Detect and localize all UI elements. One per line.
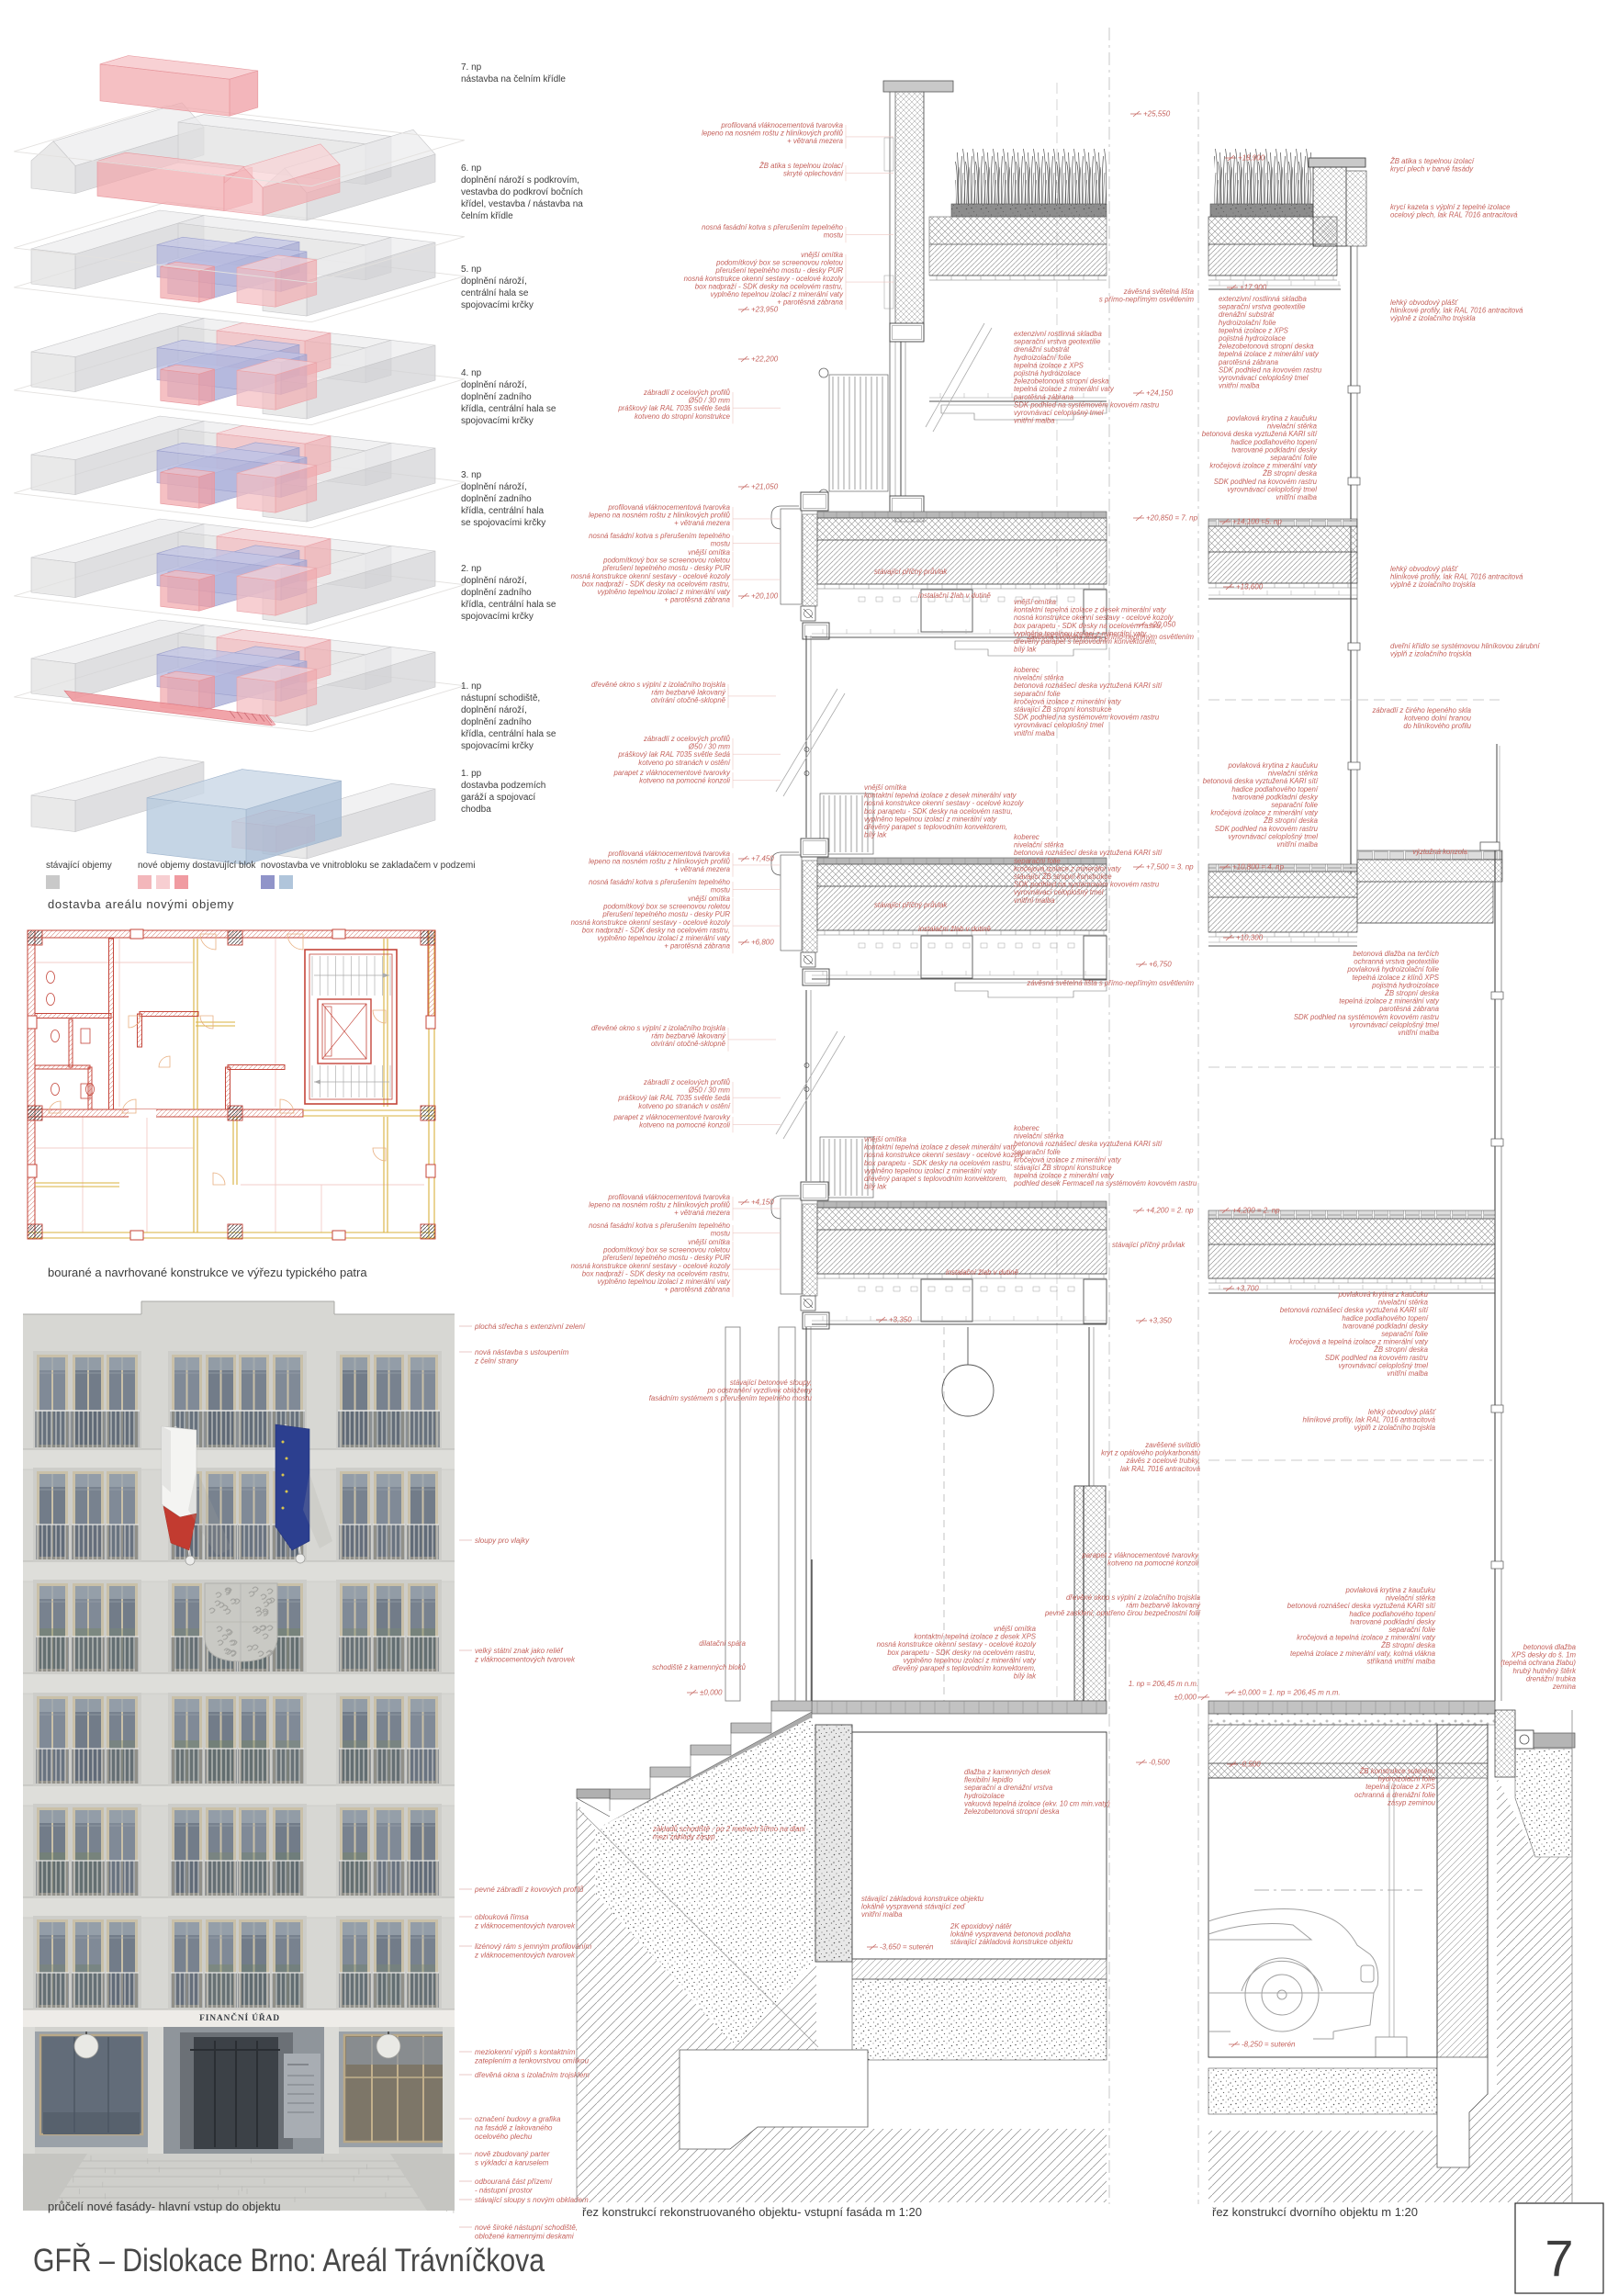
- svg-text:profilovaná vláknocementová tv: profilovaná vláknocementová tvarovkalepe…: [589, 1193, 731, 1217]
- svg-text:+18,900: +18,900: [1238, 154, 1265, 163]
- svg-text:lehký obvodový plášťhliníkové: lehký obvodový plášťhliníkové profily, l…: [1303, 1408, 1437, 1432]
- svg-text:pevné zábradlí z kovových prof: pevné zábradlí z kovových profilů: [474, 1885, 584, 1894]
- svg-text:+6,800: +6,800: [751, 939, 774, 947]
- svg-text:průčelí nové fasády- hlavní vs: průčelí nové fasády- hlavní vstup do obj…: [48, 2200, 281, 2213]
- svg-text:ŽB atika s tepelnou izolacískr: ŽB atika s tepelnou izolacískryté oplech…: [759, 162, 844, 178]
- svg-text:závěsná světelná lišta s přímo: závěsná světelná lišta s přímo-nepřímým …: [1026, 979, 1194, 987]
- svg-text:±0,000: ±0,000: [1174, 1694, 1197, 1702]
- svg-text:lehký obvodový plášťhliníkové: lehký obvodový plášťhliníkové profily, l…: [1390, 565, 1523, 589]
- svg-text:novostavba ve vnitrobloku se z: novostavba ve vnitrobloku se zakladačem …: [261, 861, 475, 871]
- svg-text:závěsná světelná lišta s přímo: závěsná světelná lišta s přímo-nepřímým …: [1026, 633, 1194, 641]
- svg-text:zábradlí z ocelových profilůØ5: zábradlí z ocelových profilůØ50 / 30 mmp…: [617, 1078, 730, 1110]
- svg-text:oblouková římsaz vláknocemento: oblouková římsaz vláknocementových tvaro…: [474, 1913, 576, 1930]
- svg-text:výztužná konzola: výztužná konzola: [1412, 848, 1467, 856]
- svg-text:řez konstrukcí dvorního objekt: řez konstrukcí dvorního objektu m 1:20: [1212, 2205, 1418, 2219]
- svg-text:nově zbudovaný parters výkladc: nově zbudovaný parters výkladci a karuse…: [475, 2150, 550, 2167]
- svg-text:stávající příčný průvlak: stávající příčný průvlak: [874, 901, 948, 909]
- svg-text:+23,950: +23,950: [751, 306, 779, 314]
- svg-text:velký státní znak jako reliéfz: velký státní znak jako reliéfz vláknocem…: [474, 1647, 576, 1663]
- svg-text:stávající sloupy s novým obkla: stávající sloupy s novým obkladem: [475, 2196, 589, 2204]
- svg-text:+6,750: +6,750: [1149, 961, 1172, 969]
- svg-text:instalační žlab v dutině: instalační žlab v dutině: [946, 1268, 1019, 1277]
- svg-text:profilovaná vláknocementová tv: profilovaná vláknocementová tvarovkalepe…: [702, 121, 844, 145]
- svg-text:koberecnivelační stěrkabetonov: koberecnivelační stěrkabetonová roznášec…: [1014, 833, 1163, 905]
- svg-text:nosná fasádní kotva s přerušen: nosná fasádní kotva s přerušením tepelné…: [589, 532, 731, 548]
- svg-text:6. npdoplnění nároží s podkrov: 6. npdoplnění nároží s podkrovím,vestavb…: [461, 163, 583, 221]
- svg-text:+22,200: +22,200: [751, 355, 779, 364]
- svg-text:závěsná světelná lištas přímo-: závěsná světelná lištas přímo-nepřímým o…: [1099, 287, 1195, 304]
- svg-text:7. npnástavba na čelním křídle: 7. npnástavba na čelním křídle: [461, 62, 566, 84]
- svg-text:ŽB atika s tepelnou izolacíkry: ŽB atika s tepelnou izolacíkrycí plech v…: [1389, 157, 1475, 174]
- svg-text:+21,050: +21,050: [751, 483, 779, 491]
- svg-text:lizénový rám s jemným profilov: lizénový rám s jemným profilovánímz vlák…: [474, 1942, 591, 1959]
- svg-text:+13,600: +13,600: [1236, 583, 1264, 591]
- svg-text:-0,500: -0,500: [1240, 1761, 1261, 1769]
- svg-text:+3,700: +3,700: [1236, 1285, 1259, 1293]
- svg-text:1. np = 206,45 m n.m.: 1. np = 206,45 m n.m.: [1129, 1680, 1198, 1688]
- svg-text:vnější omítkapodomítkový box s: vnější omítkapodomítkový box se screenov…: [571, 895, 731, 951]
- svg-text:profilovaná vláknocementová tv: profilovaná vláknocementová tvarovkalepe…: [589, 850, 731, 873]
- svg-text:betonová dlažba na terčíchochr: betonová dlažba na terčíchochranná vrstv…: [1294, 950, 1440, 1037]
- svg-text:povlaková krytina z kaučukuniv: povlaková krytina z kaučukunivelační stě…: [1202, 414, 1318, 501]
- svg-text:schodiště z kamenných bloků: schodiště z kamenných bloků: [652, 1663, 747, 1671]
- svg-text:označení budovy a grafikana fa: označení budovy a grafikana fasádě z lak…: [475, 2115, 561, 2141]
- svg-text:sloupy pro vlajky: sloupy pro vlajky: [475, 1536, 530, 1545]
- svg-text:stávající betonové sloupy,po o: stávající betonové sloupy,po odstranění …: [649, 1379, 813, 1402]
- svg-text:dveřní křídlo se systémovou hl: dveřní křídlo se systémovou hliníkovou z…: [1390, 642, 1540, 658]
- svg-text:3. npdoplnění nároží,doplnění: 3. npdoplnění nároží,doplnění zadníhokří…: [461, 470, 545, 528]
- svg-text:+14,100 =5. np: +14,100 =5. np: [1232, 518, 1282, 526]
- svg-text:lehký obvodový plášťhliníkové: lehký obvodový plášťhliníkové profily, l…: [1390, 298, 1523, 322]
- svg-text:instalační žlab v dutině: instalační žlab v dutině: [918, 591, 992, 600]
- svg-text:vnější omítkakontaktní tepelná: vnější omítkakontaktní tepelná izolace z…: [864, 1135, 1024, 1191]
- svg-text:+25,550: +25,550: [1143, 110, 1171, 118]
- svg-text:±0,000 = 1. np = 206,45 m n.m.: ±0,000 = 1. np = 206,45 m n.m.: [1238, 1689, 1341, 1697]
- svg-text:parapet z vláknocementové tvar: parapet z vláknocementové tvarovkykotven…: [612, 769, 731, 785]
- svg-text:-0,500: -0,500: [1149, 1759, 1170, 1767]
- svg-text:GFŘ – Dislokace Brno: Areál Tr: GFŘ – Dislokace Brno: Areál Trávníčkova: [33, 2243, 545, 2279]
- svg-text:dřevěné okno s výplní z izolač: dřevěné okno s výplní z izolačního trojs…: [591, 1024, 726, 1048]
- svg-text:stávající objemy: stávající objemy: [46, 861, 112, 871]
- svg-text:extenzivní rostlinná skladbase: extenzivní rostlinná skladbaseparační vr…: [1013, 330, 1160, 425]
- svg-text:nová nástavba s ustoupenímz če: nová nástavba s ustoupenímz čelní strany: [474, 1348, 569, 1365]
- svg-text:dřevěné okno s výplní z izolač: dřevěné okno s výplní z izolačního trojs…: [591, 681, 726, 704]
- svg-text:2. npdoplnění nároží,doplnění: 2. npdoplnění nároží,doplnění zadníhokří…: [461, 564, 556, 622]
- svg-text:5. npdoplnění nároží,centrální: 5. npdoplnění nároží,centrální hala sesp…: [461, 264, 534, 310]
- svg-text:vnější omítkapodomítkový box s: vnější omítkapodomítkový box se screenov…: [571, 1238, 731, 1294]
- svg-text:stávající příčný průvlak: stávající příčný průvlak: [1112, 1241, 1186, 1249]
- svg-text:+3,350: +3,350: [889, 1316, 912, 1324]
- svg-text:+7,500 = 3. np: +7,500 = 3. np: [1146, 863, 1194, 872]
- svg-text:dřevěná okna s izolačním trojs: dřevěná okna s izolačním trojsklem: [475, 2071, 590, 2079]
- svg-text:+4,200 = 2. np: +4,200 = 2. np: [1146, 1207, 1194, 1215]
- svg-text:-8,250 = suterén: -8,250 = suterén: [1242, 2041, 1296, 2049]
- svg-text:-3,650 = suterén: -3,650 = suterén: [880, 1943, 934, 1952]
- svg-text:vnější omítkapodomítkový box s: vnější omítkapodomítkový box se screenov…: [684, 251, 844, 307]
- svg-text:dřevěné okno s výplní z izolač: dřevěné okno s výplní z izolačního trojs…: [1044, 1593, 1201, 1617]
- svg-text:+10,300: +10,300: [1236, 934, 1264, 942]
- svg-text:zavěšené svítidlokryt z opálov: zavěšené svítidlokryt z opálového polyka…: [1101, 1441, 1201, 1473]
- svg-text:stávající příčný průvlak: stávající příčný průvlak: [874, 568, 948, 576]
- svg-text:instalační žlab v dutině: instalační žlab v dutině: [918, 925, 992, 933]
- svg-text:+4,200 = 2. np: +4,200 = 2. np: [1232, 1207, 1280, 1215]
- svg-text:vnější omítkakontaktní tepelná: vnější omítkakontaktní tepelná izolace z…: [1014, 598, 1174, 654]
- svg-text:+20,850 = 7. np: +20,850 = 7. np: [1146, 514, 1198, 523]
- svg-text:betonová dlažbaXPS desky do š.: betonová dlažbaXPS desky do š. 1m(tepeln…: [1500, 1643, 1577, 1691]
- svg-text:4. npdoplnění nároží,doplnění: 4. npdoplnění nároží,doplnění zadníhokří…: [461, 368, 556, 426]
- svg-text:koberecnivelační stěrkabetonov: koberecnivelační stěrkabetonová roznášec…: [1013, 1124, 1197, 1187]
- svg-text:dostavba areálu novými objemy: dostavba areálu novými objemy: [48, 897, 234, 911]
- svg-text:řez konstrukcí rekonstruovanéh: řez konstrukcí rekonstruovaného objektu-…: [582, 2205, 922, 2219]
- svg-text:±0,000: ±0,000: [700, 1689, 723, 1697]
- svg-text:+10,800 = 4. np: +10,800 = 4. np: [1232, 863, 1285, 872]
- svg-text:povlaková krytina z kaučukuniv: povlaková krytina z kaučukunivelační stě…: [1280, 1290, 1429, 1378]
- svg-text:meziokenní výplň s kontaktnímz: meziokenní výplň s kontaktnímzateplením …: [474, 2048, 590, 2065]
- svg-text:bourané a navrhované konstrukc: bourané a navrhované konstrukce ve výřez…: [48, 1266, 367, 1279]
- svg-text:zábradlí z čirého lepeného skl: zábradlí z čirého lepeného sklakotveno d…: [1372, 706, 1472, 730]
- svg-text:vnější omítkapodomítkový box s: vnější omítkapodomítkový box se screenov…: [571, 548, 731, 604]
- svg-text:+20,100: +20,100: [751, 592, 779, 601]
- svg-text:odbouraná část přízemí- nástup: odbouraná část přízemí- nástupní prostor: [475, 2178, 553, 2194]
- svg-text:nové objemy dostavující blok: nové objemy dostavující blok: [138, 861, 256, 871]
- svg-text:1. npnástupní schodiště,doplně: 1. npnástupní schodiště,doplnění nároží,…: [461, 681, 556, 751]
- svg-text:zábradlí z ocelových profilůØ5: zábradlí z ocelových profilůØ50 / 30 mmp…: [617, 388, 730, 421]
- svg-text:+7,450: +7,450: [751, 855, 774, 863]
- svg-text:nosná fasádní kotva s přerušen: nosná fasádní kotva s přerušením tepelné…: [589, 878, 731, 895]
- svg-text:profilovaná vláknocementová tv: profilovaná vláknocementová tvarovkalepe…: [589, 503, 731, 527]
- svg-text:+4,150: +4,150: [751, 1199, 774, 1207]
- svg-text:extenzivní rostlinná skladbase: extenzivní rostlinná skladbaseparační vr…: [1218, 295, 1322, 390]
- svg-text:nosná fasádní kotva s přerušen: nosná fasádní kotva s přerušením tepelné…: [702, 223, 844, 240]
- svg-text:7: 7: [1545, 2229, 1573, 2287]
- svg-text:krycí kazeta s výplní z tepeln: krycí kazeta s výplní z tepelné izolaceo…: [1390, 203, 1518, 219]
- svg-text:plochá střecha s extenzivní ze: plochá střecha s extenzivní zelení: [474, 1322, 586, 1331]
- svg-text:parapet z vláknocementové tvar: parapet z vláknocementové tvarovkykotven…: [612, 1113, 731, 1130]
- svg-text:+3,350: +3,350: [1149, 1317, 1172, 1325]
- svg-text:+24,150: +24,150: [1146, 389, 1174, 398]
- svg-text:vnější omítkakontaktní tepelná: vnější omítkakontaktní tepelná izolace z…: [864, 783, 1024, 839]
- svg-text:povlaková krytina z kaučukuniv: povlaková krytina z kaučukunivelační stě…: [1203, 761, 1319, 849]
- svg-text:povlaková krytina z kaučukuniv: povlaková krytina z kaučukunivelační stě…: [1287, 1586, 1436, 1665]
- svg-text:+17,900: +17,900: [1240, 284, 1267, 292]
- svg-text:nové široké nástupní schodiště: nové široké nástupní schodiště,obložené …: [475, 2223, 578, 2240]
- svg-text:nosná fasádní kotva s přerušen: nosná fasádní kotva s přerušením tepelné…: [589, 1221, 731, 1238]
- svg-text:dilatační spára: dilatační spára: [699, 1639, 746, 1648]
- svg-text:koberecnivelační stěrkabetonov: koberecnivelační stěrkabetonová roznášec…: [1014, 666, 1163, 737]
- svg-text:zábradlí z ocelových profilůØ5: zábradlí z ocelových profilůØ50 / 30 mmp…: [617, 735, 730, 767]
- svg-text:vnější omítkakontaktní tepelná: vnější omítkakontaktní tepelná izolace z…: [877, 1625, 1037, 1681]
- svg-text:1. ppdostavba podzemíchgaráží: 1. ppdostavba podzemíchgaráží a spojovac…: [461, 769, 545, 815]
